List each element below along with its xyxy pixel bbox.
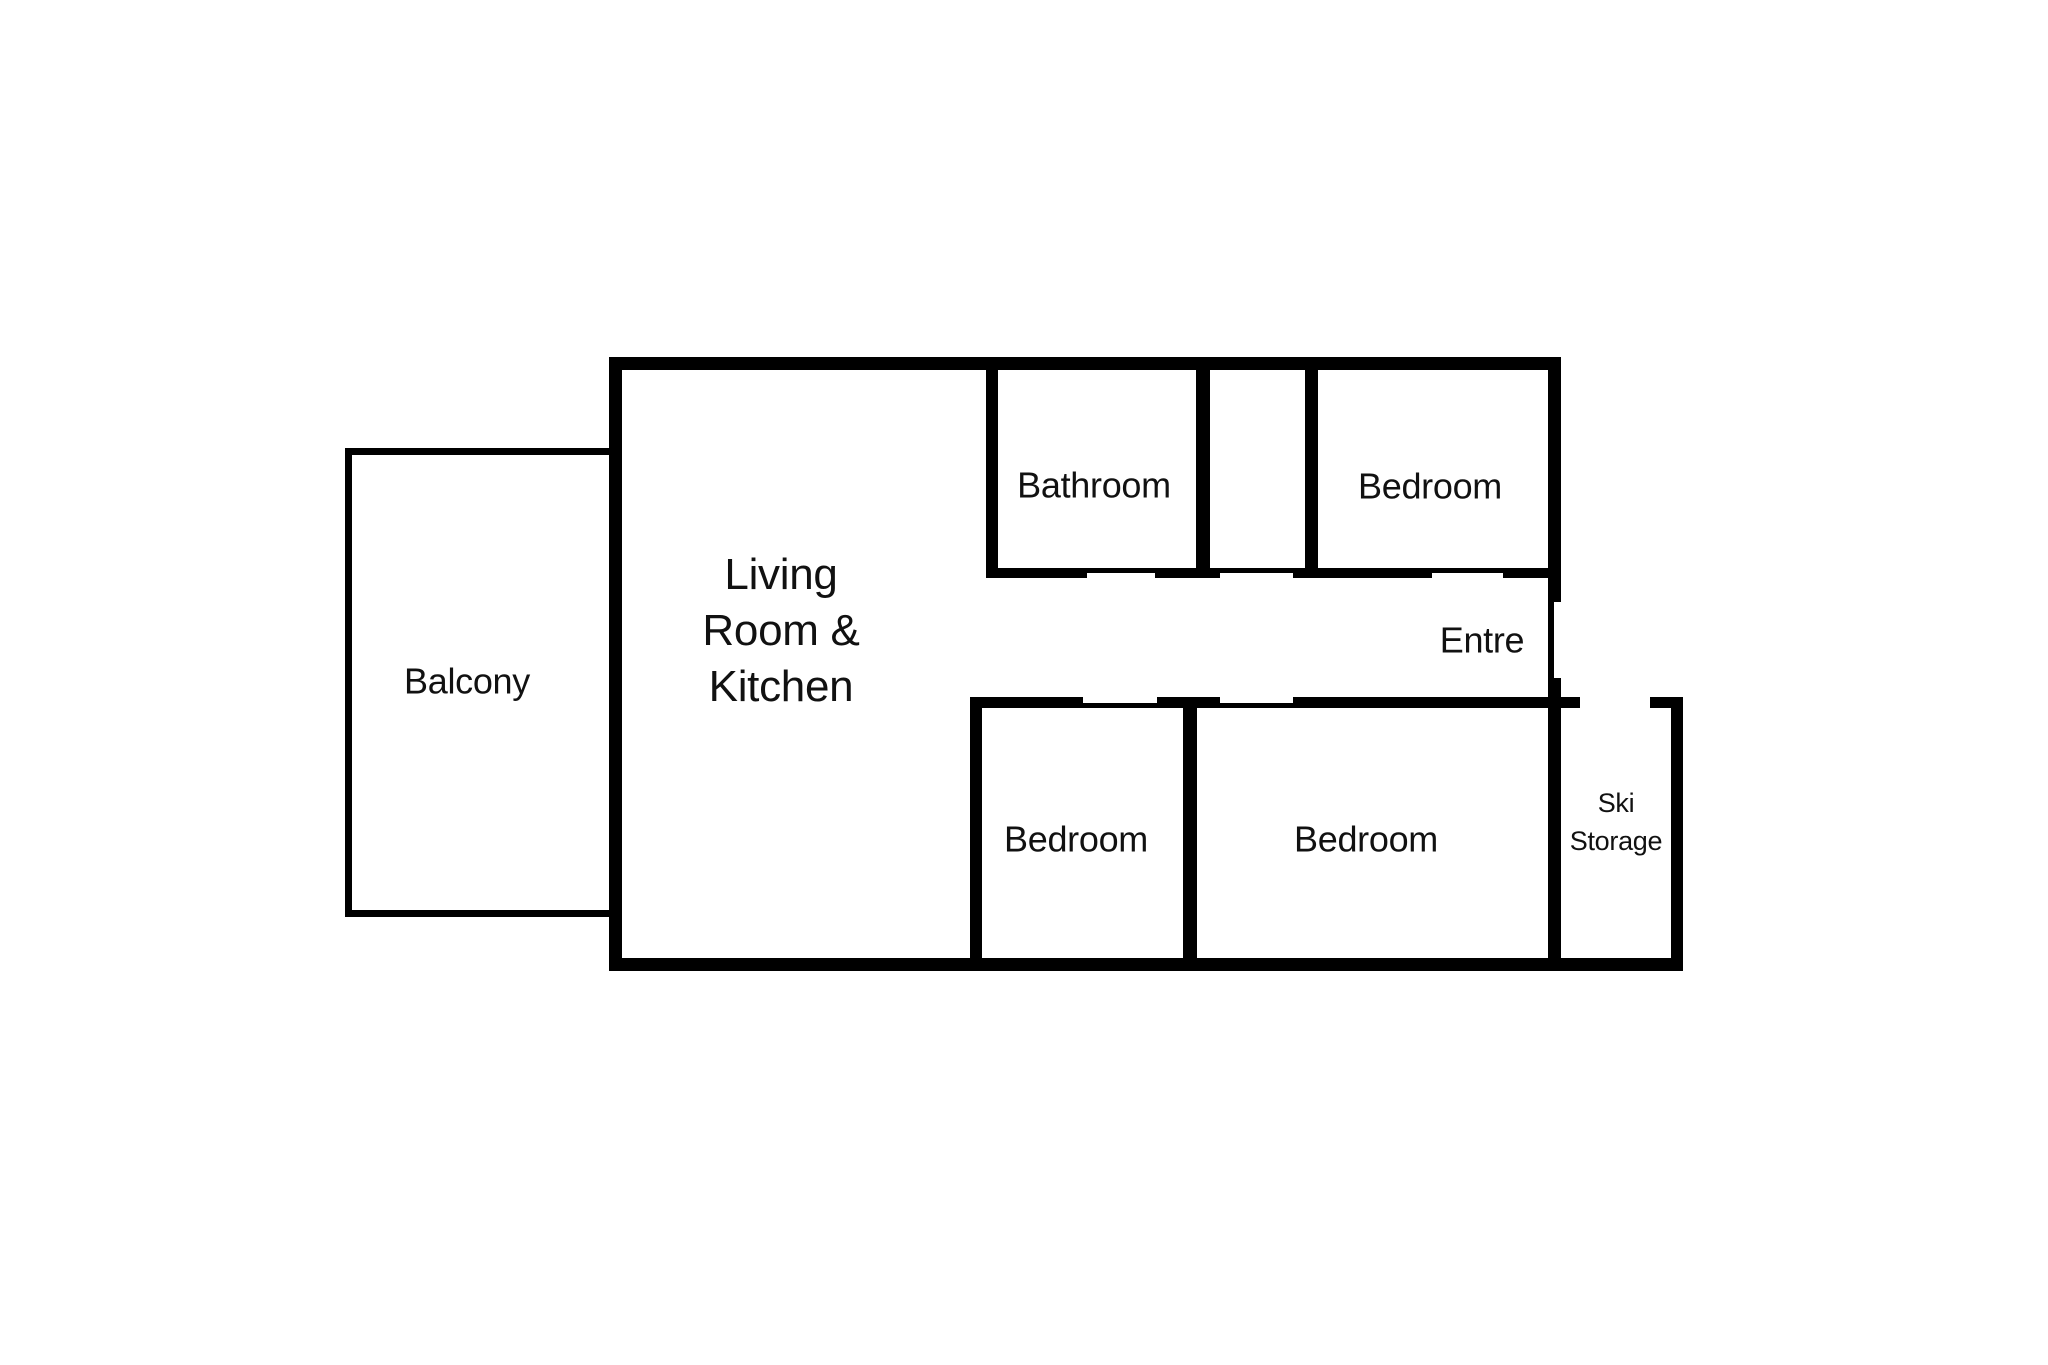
wall-bottomrow-top-seg3 [1293,697,1580,708]
wall-bedroom-bl-left [970,697,982,958]
living-room-kitchen-label-line1: Living [702,547,859,603]
wall-balcony-bottom [345,910,609,917]
bedroom-top-door-lintel [1432,568,1503,573]
wall-closet-right [1305,370,1318,578]
wall-balcony-top [345,448,609,455]
closet-door-lintel [1220,568,1293,573]
wall-outer-bottom [609,958,1683,971]
ski-storage-label-line2: Storage [1570,822,1662,860]
wall-outer-top [609,357,1561,370]
wall-toprow-bottom-seg1 [986,568,1087,578]
bathroom-door-lintel [1087,568,1155,573]
wall-bathroom-left [986,370,998,578]
wall-bathroom-right [1196,370,1210,578]
entry-door-line [1548,602,1554,678]
bedroom-bottom-right-label: Bedroom [1294,818,1438,859]
bedroom-bottom-left-label: Bedroom [1004,818,1148,859]
wall-bedroom-partition [1183,708,1197,958]
wall-right-upper [1548,357,1561,602]
balcony-label: Balcony [404,660,530,701]
bedroom-top-label: Bedroom [1358,465,1502,506]
living-room-kitchen-label: Living Room & Kitchen [702,547,859,715]
ski-storage-label: Ski Storage [1570,784,1662,860]
wall-bottomrow-top-seg2 [1157,697,1220,708]
bedroom-bl-door-sill [1083,703,1157,708]
floor-plan: Balcony Living Room & Kitchen Bathroom B… [0,0,2048,1365]
wall-toprow-bottom-seg4 [1503,568,1561,578]
wall-toprow-bottom-seg2 [1155,568,1220,578]
entre-label: Entre [1440,619,1525,660]
bathroom-label: Bathroom [1017,464,1171,505]
wall-balcony-left [345,448,352,917]
wall-bottomrow-top-seg1 [970,697,1083,708]
wall-right-lower [1548,678,1561,971]
wall-living-left [609,357,622,971]
wall-toprow-bottom-seg3 [1293,568,1432,578]
living-room-kitchen-label-line2: Room & [702,603,859,659]
ski-storage-label-line1: Ski [1570,784,1662,822]
living-room-kitchen-label-line3: Kitchen [702,659,859,715]
bedroom-br-door-sill [1220,703,1293,708]
wall-ski-right [1671,697,1683,971]
